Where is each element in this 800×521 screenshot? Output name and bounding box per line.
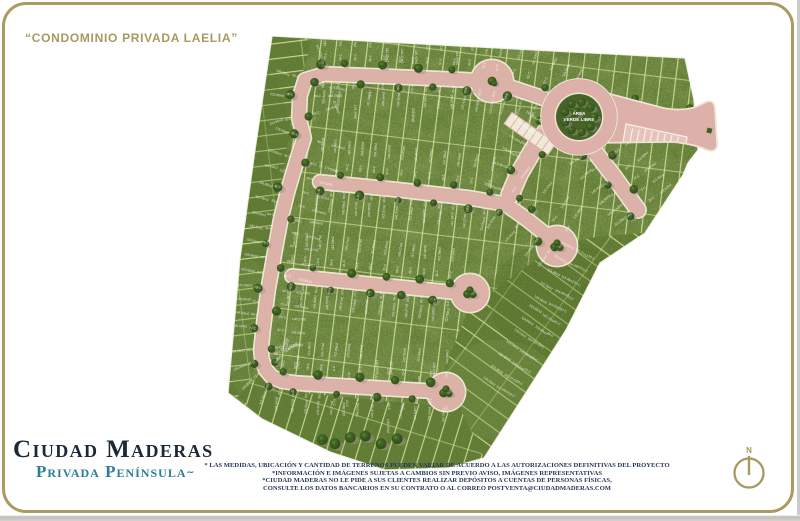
svg-text:146.50m2: 146.50m2 xyxy=(450,95,454,109)
svg-text:26-C: 26-C xyxy=(371,394,375,402)
svg-text:140.27m2: 140.27m2 xyxy=(292,317,307,322)
svg-text:113.38m2: 113.38m2 xyxy=(307,342,311,356)
svg-text:223.85m2: 223.85m2 xyxy=(455,51,460,66)
svg-text:119.02m2: 119.02m2 xyxy=(305,233,309,247)
svg-text:140.27m2: 140.27m2 xyxy=(318,234,323,249)
svg-text:135.56m2: 135.56m2 xyxy=(432,363,436,377)
svg-text:15-C: 15-C xyxy=(262,240,270,245)
svg-text:135.56m2: 135.56m2 xyxy=(314,197,319,212)
svg-text:15-C: 15-C xyxy=(353,53,358,61)
svg-text:66-C: 66-C xyxy=(368,262,373,270)
svg-text:140.27m2: 140.27m2 xyxy=(400,49,404,63)
svg-text:41-C: 41-C xyxy=(342,259,346,267)
svg-text:119.02m2: 119.02m2 xyxy=(296,355,300,369)
svg-text:84-C: 84-C xyxy=(314,94,322,98)
svg-text:223.85m2: 223.85m2 xyxy=(414,148,418,162)
svg-text:179.34m2: 179.34m2 xyxy=(316,401,320,415)
svg-text:146.50m2: 146.50m2 xyxy=(375,360,380,375)
svg-text:8-C: 8-C xyxy=(446,300,450,306)
svg-text:112.90m2: 112.90m2 xyxy=(389,361,393,375)
svg-text:84-C: 84-C xyxy=(422,267,426,275)
svg-text:119.02m2: 119.02m2 xyxy=(333,139,337,153)
svg-text:19-C: 19-C xyxy=(413,170,418,178)
svg-text:57-C: 57-C xyxy=(495,63,500,71)
svg-text:15-C: 15-C xyxy=(423,199,427,207)
svg-text:254.66m2: 254.66m2 xyxy=(367,203,371,217)
svg-text:93-C: 93-C xyxy=(301,283,305,291)
svg-text:146.50m2: 146.50m2 xyxy=(387,144,392,159)
svg-text:84-C: 84-C xyxy=(291,389,295,397)
svg-text:112.90m2: 112.90m2 xyxy=(413,406,417,420)
svg-text:122.47m2: 122.47m2 xyxy=(370,403,375,418)
svg-text:26-C: 26-C xyxy=(286,92,294,97)
svg-text:146.50m2: 146.50m2 xyxy=(328,94,342,98)
svg-text:179.34m2: 179.34m2 xyxy=(353,105,358,120)
svg-text:140.27m2: 140.27m2 xyxy=(404,303,409,318)
svg-text:41-C: 41-C xyxy=(428,397,433,405)
svg-text:N: N xyxy=(746,446,752,455)
svg-text:33-C: 33-C xyxy=(265,226,273,231)
svg-text:41-C: 41-C xyxy=(334,169,338,177)
svg-text:118.80m2: 118.80m2 xyxy=(445,350,449,364)
svg-text:57-C: 57-C xyxy=(381,82,385,90)
svg-text:33-C: 33-C xyxy=(482,207,487,215)
svg-text:55-C: 55-C xyxy=(356,393,360,401)
svg-text:113.38m2: 113.38m2 xyxy=(331,236,335,250)
svg-text:41-C: 41-C xyxy=(379,291,384,299)
svg-text:41-C: 41-C xyxy=(435,269,439,277)
svg-text:41-C: 41-C xyxy=(358,365,362,373)
svg-text:112.90m2: 112.90m2 xyxy=(422,209,426,223)
svg-text:254.66m2: 254.66m2 xyxy=(381,91,386,106)
svg-text:VERDE LIBRE: VERDE LIBRE xyxy=(564,117,595,122)
svg-text:15-C: 15-C xyxy=(355,261,360,269)
svg-text:254.66m2: 254.66m2 xyxy=(427,406,432,421)
svg-text:41-C: 41-C xyxy=(347,372,351,380)
svg-text:41-C: 41-C xyxy=(437,85,442,93)
svg-text:8-C: 8-C xyxy=(332,365,336,371)
svg-text:146.50m2: 146.50m2 xyxy=(414,50,419,65)
svg-text:122.47m2: 122.47m2 xyxy=(290,398,295,413)
svg-text:15-C: 15-C xyxy=(417,376,421,384)
svg-text:118.80m2: 118.80m2 xyxy=(347,141,352,155)
svg-text:112.35m2: 112.35m2 xyxy=(441,408,446,422)
svg-text:15-C: 15-C xyxy=(260,255,268,260)
svg-text:19-C: 19-C xyxy=(281,359,286,367)
svg-text:26-C: 26-C xyxy=(279,315,287,320)
svg-text:93-C: 93-C xyxy=(385,167,389,175)
svg-text:146.50m2: 146.50m2 xyxy=(325,296,329,310)
svg-text:8-C: 8-C xyxy=(356,194,360,200)
svg-text:112.35m2: 112.35m2 xyxy=(385,48,389,62)
svg-text:55-C: 55-C xyxy=(284,274,292,279)
svg-text:84-C: 84-C xyxy=(387,403,391,411)
svg-text:72-C: 72-C xyxy=(316,257,320,265)
svg-text:135.56m2: 135.56m2 xyxy=(423,245,427,259)
svg-text:ÁREA: ÁREA xyxy=(572,110,586,116)
svg-text:84-C: 84-C xyxy=(247,348,255,352)
svg-text:33-C: 33-C xyxy=(329,189,334,197)
svg-text:72-C: 72-C xyxy=(249,326,257,331)
svg-text:119.02m2: 119.02m2 xyxy=(431,307,435,321)
svg-text:33-C: 33-C xyxy=(319,363,324,371)
svg-text:15-C: 15-C xyxy=(374,374,378,382)
svg-text:26-C: 26-C xyxy=(345,163,350,171)
svg-text:113.38m2: 113.38m2 xyxy=(450,212,454,226)
svg-text:41-C: 41-C xyxy=(451,85,455,93)
svg-text:223.85m2: 223.85m2 xyxy=(237,297,252,302)
svg-text:93-C: 93-C xyxy=(304,390,309,398)
svg-text:112.35m2: 112.35m2 xyxy=(238,283,252,287)
svg-text:93-C: 93-C xyxy=(406,294,410,302)
svg-text:84-C: 84-C xyxy=(372,165,376,173)
svg-text:135.56m2: 135.56m2 xyxy=(233,324,247,328)
svg-text:122.47m2: 122.47m2 xyxy=(354,202,358,216)
svg-text:113.38m2: 113.38m2 xyxy=(342,402,346,416)
svg-text:26-C: 26-C xyxy=(306,362,310,370)
svg-text:26-C: 26-C xyxy=(396,83,401,91)
svg-text:72-C: 72-C xyxy=(410,84,415,92)
svg-text:118.80m2: 118.80m2 xyxy=(423,94,427,108)
svg-text:33-C: 33-C xyxy=(342,191,347,199)
svg-text:26-C: 26-C xyxy=(368,54,373,62)
svg-text:19-C: 19-C xyxy=(401,368,406,376)
svg-text:113.38m2: 113.38m2 xyxy=(286,292,290,306)
svg-text:135.56m2: 135.56m2 xyxy=(386,419,390,433)
svg-text:179.34m2: 179.34m2 xyxy=(274,396,279,411)
svg-text:19-C: 19-C xyxy=(382,195,386,203)
svg-text:19-C: 19-C xyxy=(303,255,308,263)
svg-text:223.85m2: 223.85m2 xyxy=(411,108,415,122)
svg-text:57-C: 57-C xyxy=(277,328,285,333)
svg-text:140.27m2: 140.27m2 xyxy=(359,344,364,359)
svg-text:19-C: 19-C xyxy=(424,84,428,92)
